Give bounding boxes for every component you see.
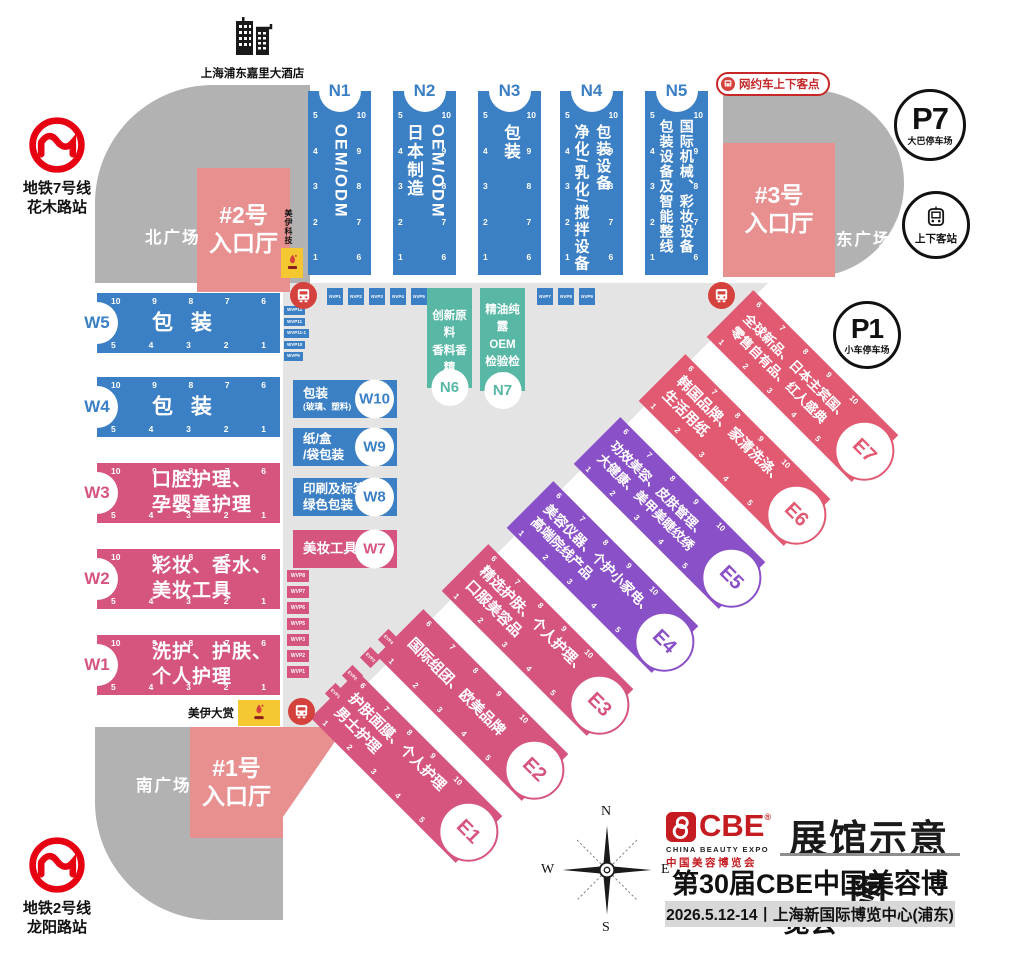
sponsor-north-label: 美伊科技 (283, 209, 294, 245)
title-block: CBE ® CHINA BEAUTY EXPO 中国美容博览会 展馆示意图 第3… (660, 804, 960, 950)
hall-e1-badge: E1 (426, 789, 511, 874)
hotel-building-icon (227, 14, 279, 62)
hall-e5-badge: E5 (689, 535, 774, 620)
compass-north: N (601, 804, 611, 820)
bus-icon-glyph (293, 703, 310, 720)
meiyi-logo-icon (250, 703, 268, 723)
hall-w7: 美妆工具 W7 (293, 530, 397, 568)
hall-w4-gates-top: 109876 (111, 380, 266, 390)
bus-icon-glyph (295, 287, 312, 304)
hall-w5-gates-top: 109876 (111, 296, 266, 306)
wvp-tags-blue: WVP12WVP11WVP11-1WVP10WVP9 (284, 306, 309, 361)
parking-p1: P1 小车停车场 (833, 301, 901, 369)
hall-w9-label: 纸/盒 /袋包装 (303, 431, 344, 464)
hall-n3-gates-right: 109876 (527, 110, 536, 262)
pickup-dropoff-label: 上下客站 (915, 231, 957, 246)
hall-n4: N4 包装设备 净化/乳化/搅拌设备 54321 109876 (560, 91, 623, 275)
sponsor-south-label: 美伊大赏 (188, 705, 234, 721)
sponsor-south-logo (238, 700, 280, 726)
hall-n5-gates-right: 109876 (694, 110, 703, 262)
metro-line7-label: 地铁7号线 花木路站 (23, 180, 91, 218)
hall-w3-gates-bottom: 54321 (111, 510, 266, 520)
hall-n3: N3 包装 54321 109876 (478, 91, 541, 275)
south-plaza-label: 南广场 (136, 772, 192, 796)
hall-w10-label: 包装(玻璃、塑料) (303, 385, 351, 412)
hall-n6: 创新原料 香料香精 N6 (427, 288, 472, 388)
bus-icon (288, 698, 315, 725)
cbe-logo-icon (666, 812, 696, 842)
meiyi-logo-icon (285, 253, 300, 273)
hall-w5-badge: W5 (76, 302, 118, 344)
hall-w4-label: 包 装 (152, 393, 274, 420)
kerry-hotel: 上海浦东嘉里大酒店 (205, 14, 300, 81)
hall-n5: N5 国际机械、彩妆设备 包装设备及智能整线 54321 109876 (645, 91, 708, 275)
hall-w5: W5 包 装 109876 54321 (97, 293, 280, 353)
train-icon (924, 205, 948, 229)
cbe-logo: CBE ® (666, 812, 771, 842)
expo-floor-map: #2号 入口厅 #3号 入口厅 #1号 入口厅 北广场 东广场 南广场 N1 O… (0, 0, 1019, 954)
hall-n5-badge: N5 (656, 70, 698, 112)
hall-n2: N2 OEM/ODM 日本制造 54321 109876 (393, 91, 456, 275)
bus-icon-glyph (713, 287, 730, 304)
bus-icon (721, 77, 735, 91)
hall-n3-gates-left: 54321 (483, 110, 488, 262)
hall-w9-badge: W9 (355, 428, 394, 467)
hall-n4-label: 包装设备 净化/乳化/搅拌设备 (570, 124, 614, 272)
hall-w10: 包装(玻璃、塑料) W10 (293, 380, 397, 418)
compass-south: S (602, 920, 610, 936)
hall-n4-gates-left: 54321 (565, 110, 570, 262)
metro-line2-station: 地铁2号线 龙阳路站 (18, 836, 96, 938)
parking-p7-code: P7 (912, 103, 948, 134)
bus-icon (708, 282, 735, 309)
metro-logo-icon (28, 836, 86, 894)
hall-w9: 纸/盒 /袋包装 W9 (293, 428, 397, 466)
north-plaza-label: 北广场 (145, 224, 201, 248)
hall-n4-gates-right: 109876 (609, 110, 618, 262)
hall-n2-badge: N2 (404, 70, 446, 112)
hall-w1-badge: W1 (76, 644, 118, 686)
hall-w5-label: 包 装 (152, 309, 274, 336)
hall-w1-gates-bottom: 54321 (111, 682, 266, 692)
hall-w2: W2 彩妆、香水、 美妆工具 109876 54321 (97, 549, 280, 609)
hall-n7-badge: N7 (484, 372, 521, 409)
entrance-hall-1: #1号 入口厅 (190, 727, 283, 838)
hall-n6-badge: N6 (431, 369, 468, 406)
hall-w2-gates-bottom: 54321 (111, 596, 266, 606)
east-plaza-label: 东广场 (836, 226, 892, 250)
hall-n1-gates-right: 109876 (357, 110, 366, 262)
parking-p1-code: P1 (851, 315, 883, 343)
ride-hailing-label: 网约车上下客点 (739, 76, 820, 92)
hall-n5-gates-left: 54321 (650, 110, 655, 262)
hall-w10-badge: W10 (355, 380, 394, 419)
hall-w3-badge: W3 (76, 472, 118, 514)
hall-w8: 印刷及标签、 绿色包装 W8 (293, 478, 397, 516)
hall-w2-gates-top: 109876 (111, 552, 266, 562)
hall-w4: W4 包 装 109876 54321 (97, 377, 280, 437)
parking-p1-label: 小车停车场 (844, 343, 889, 356)
entrance-hall-2: #2号 入口厅 (197, 168, 290, 292)
hall-n6-label: 创新原料 香料香精 (427, 308, 472, 377)
hall-n1-label: OEM/ODM (328, 124, 352, 219)
hall-n1: N1 OEM/ODM 54321 109876 (308, 91, 371, 275)
entrance-hall-3-label: #3号 入口厅 (745, 182, 814, 237)
hotel-label: 上海浦东嘉里大酒店 (201, 65, 305, 81)
compass-icon (557, 820, 657, 920)
hall-w3-gates-top: 109876 (111, 466, 266, 476)
entrance-hall-2-label: #2号 入口厅 (209, 202, 278, 257)
entrance-hall-1-label: #1号 入口厅 (202, 755, 271, 810)
metro-logo-icon (28, 116, 86, 174)
hall-w3: W3 口腔护理、 孕婴童护理 109876 54321 (97, 463, 280, 523)
hall-n3-badge: N3 (489, 70, 531, 112)
hall-n1-badge: N1 (319, 70, 361, 112)
hall-n7: 精油纯露 OEM 检验检测 N7 (480, 288, 525, 391)
hall-n1-gates-left: 54321 (313, 110, 318, 262)
hall-n5-label: 国际机械、彩妆设备 包装设备及智能整线 (656, 119, 697, 254)
hall-e2-badge: E2 (492, 727, 577, 812)
ride-hailing-point: 网约车上下客点 (716, 72, 830, 96)
divider (780, 853, 960, 856)
hall-w4-gates-bottom: 54321 (111, 424, 266, 434)
entrance-hall-3: #3号 入口厅 (723, 143, 835, 277)
date-venue: 2026.5.12-14丨上海新国际博览中心(浦东) (665, 901, 955, 927)
cbe-wordmark: CBE (699, 812, 764, 840)
hall-w1: W1 洗护、护肤、 个人护理 109876 54321 (97, 635, 280, 695)
hall-w7-badge: W7 (355, 530, 394, 569)
sponsor-north-logo (281, 248, 303, 278)
compass-rose: N W E S (557, 820, 657, 920)
hall-n4-badge: N4 (571, 70, 613, 112)
wvp-tags-pink: WVP8WVP7WVP6WVP5WVP3WVP2WVP1 (287, 570, 309, 678)
registered-mark: ® (764, 812, 771, 822)
parking-p7: P7 大巴停车场 (894, 89, 966, 161)
parking-p7-label: 大巴停车场 (907, 134, 952, 147)
hall-w5-gates-bottom: 54321 (111, 340, 266, 350)
compass-west: W (541, 862, 554, 878)
metro-line7-station: 地铁7号线 花木路站 (18, 116, 96, 218)
hall-w1-gates-top: 109876 (111, 638, 266, 648)
hall-w2-badge: W2 (76, 558, 118, 600)
nvp-tags-right: NVP7NVP8NVP9 (537, 288, 595, 305)
nvp-tags-left: NVP1NVP2NVP3NVP4NVP5 (327, 288, 427, 305)
hall-n2-gates-left: 54321 (398, 110, 403, 262)
cbe-subtitle-en: CHINA BEAUTY EXPO (666, 845, 769, 854)
bus-icon (290, 282, 317, 309)
hall-n2-gates-right: 109876 (442, 110, 451, 262)
hall-w7-label: 美妆工具 (303, 540, 357, 558)
hall-n3-label: 包装 (498, 124, 522, 161)
hall-w4-badge: W4 (76, 386, 118, 428)
pickup-dropoff-station: 上下客站 (902, 191, 970, 259)
hall-w8-badge: W8 (355, 478, 394, 517)
metro-line2-label: 地铁2号线 龙阳路站 (23, 900, 91, 938)
